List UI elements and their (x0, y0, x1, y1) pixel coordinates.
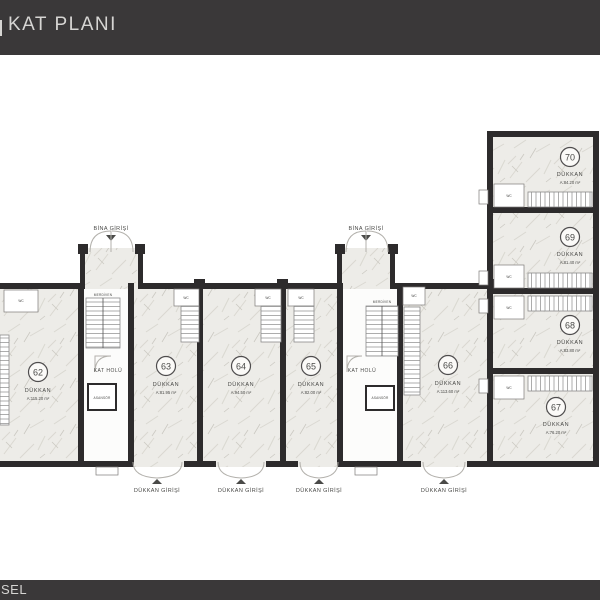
shop-type: DÜKKAN (557, 339, 584, 346)
shop-number: 68 (565, 321, 575, 331)
floor-plan: BİNA GİRİŞİ MERDİVEN KAT HOLÜ ASANSÖR Bİ… (0, 0, 600, 600)
staircase (261, 306, 281, 342)
wc-label: WC (411, 294, 417, 298)
wc-label: WC (506, 306, 512, 310)
stairs-label: MERDİVEN (94, 292, 113, 297)
rear-exit (96, 467, 118, 475)
wc-label: WC (18, 299, 24, 303)
shop-type: DÜKKAN (153, 381, 180, 388)
shop-number: 63 (161, 362, 171, 372)
shop-number: 67 (551, 403, 561, 413)
shop-area: A:76.20 m² (546, 430, 567, 435)
shop-area: A:84.20 m² (560, 180, 581, 185)
shop-entrance-label: DÜKKAN GİRİŞİ (134, 487, 180, 494)
shop-type: DÜKKAN (25, 387, 52, 394)
stairs-label: MERDİVEN (373, 299, 392, 304)
edge-staircase (0, 335, 9, 425)
staircase (528, 273, 592, 288)
staircase (528, 296, 592, 311)
footer-text: SEL (1, 582, 27, 597)
shop-type: DÜKKAN (228, 381, 255, 388)
shop-number: 62 (33, 368, 43, 378)
shop-number: 70 (565, 153, 575, 163)
side-door (479, 271, 488, 285)
shop-entrance-label: DÜKKAN GİRİŞİ (421, 487, 467, 494)
shop-number: 66 (443, 361, 453, 371)
shop-entrance-label: DÜKKAN GİRİŞİ (296, 487, 342, 494)
shop-area: A:81.95 m² (156, 390, 177, 395)
wc-label: WC (183, 296, 189, 300)
side-door (479, 379, 488, 393)
floor-hall-label: KAT HOLÜ (348, 367, 377, 374)
floor-hall-label: KAT HOLÜ (94, 367, 123, 374)
staircase (181, 306, 199, 342)
shop-type: DÜKKAN (298, 381, 325, 388)
wc-label: WC (506, 194, 512, 198)
staircase (528, 192, 592, 207)
shop-type: DÜKKAN (435, 380, 462, 387)
shop-area: A:113.60 m² (437, 389, 460, 394)
shop-number: 69 (565, 233, 575, 243)
elevator-label: ASANSÖR (372, 396, 389, 400)
shop-area: A:82.00 m² (301, 390, 322, 395)
shop-area: A:94.50 m² (231, 390, 252, 395)
side-door (479, 190, 488, 204)
wc-label: WC (265, 296, 271, 300)
wc-label: WC (506, 275, 512, 279)
shop-type: DÜKKAN (543, 421, 570, 428)
shop-area: A:81.40 m² (560, 260, 581, 265)
shop-entrance-label: DÜKKAN GİRİŞİ (218, 487, 264, 494)
shop-number: 64 (236, 362, 246, 372)
shop-area: A:115.20 m² (27, 396, 50, 401)
staircase (528, 376, 592, 391)
elevator-label: ASANSÖR (94, 396, 111, 400)
staircase (294, 306, 314, 342)
page: KAT PLANI (0, 0, 600, 600)
shop-type: DÜKKAN (557, 171, 584, 178)
shop-type: DÜKKAN (557, 251, 584, 258)
staircase (404, 307, 420, 395)
wc-label: WC (298, 296, 304, 300)
side-door (479, 299, 488, 313)
shop-number: 65 (306, 362, 316, 372)
rear-exit (355, 467, 377, 475)
footer-bar: SEL (0, 580, 600, 600)
shop-area: A:83.80 m² (560, 348, 581, 353)
wc-label: WC (506, 386, 512, 390)
